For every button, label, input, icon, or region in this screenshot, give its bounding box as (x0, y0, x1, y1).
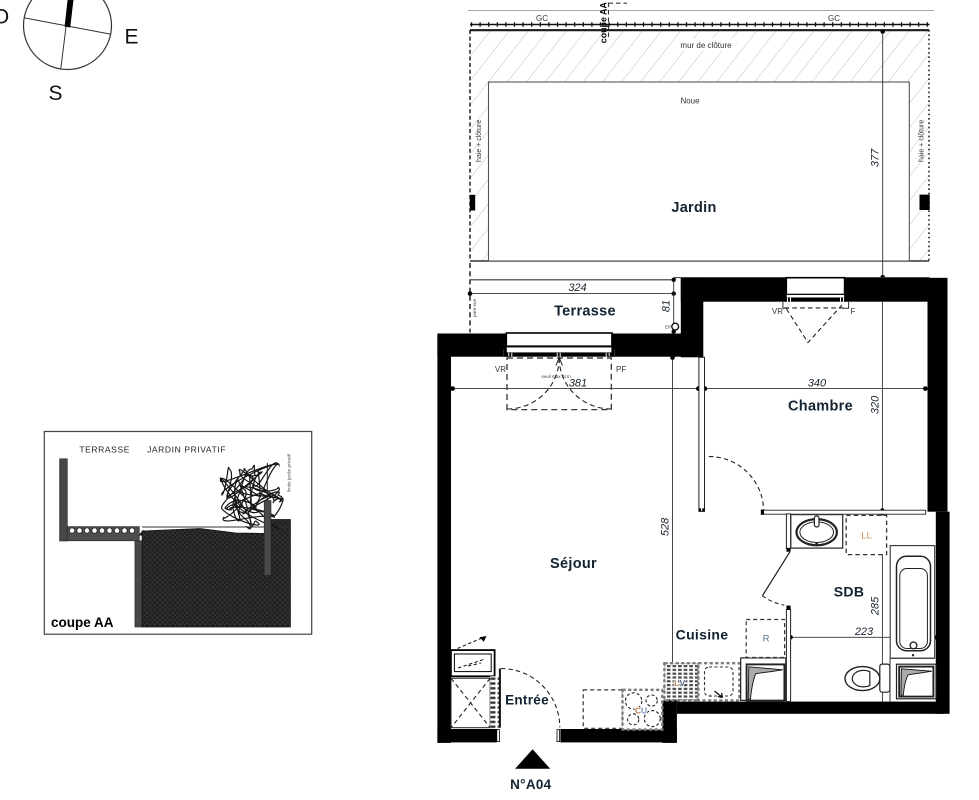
svg-text:VR: VR (495, 365, 506, 374)
svg-text:limite jardin privatif: limite jardin privatif (287, 453, 292, 492)
svg-text:L: L (674, 678, 679, 688)
svg-text:U: U (641, 706, 647, 716)
svg-text:Cuisine: Cuisine (676, 627, 729, 643)
svg-text:mur de clôture: mur de clôture (680, 41, 732, 50)
svg-text:Jardin: Jardin (671, 200, 716, 216)
svg-text:285: 285 (869, 596, 881, 616)
svg-text:GC: GC (828, 14, 840, 23)
svg-text:PF: PF (616, 365, 626, 374)
svg-text:pare-vue: pare-vue (472, 298, 477, 317)
svg-text:381: 381 (569, 377, 587, 389)
svg-text:haie + clôture: haie + clôture (476, 120, 483, 162)
svg-text:V: V (680, 678, 686, 688)
svg-text:JARDIN PRIVATIF: JARDIN PRIVATIF (147, 445, 226, 455)
svg-text:Séjour: Séjour (550, 556, 597, 572)
svg-text:N°A04: N°A04 (510, 777, 552, 792)
svg-text:528: 528 (660, 517, 672, 536)
svg-text:Entrée: Entrée (505, 693, 549, 708)
svg-text:SDB: SDB (834, 584, 864, 600)
svg-text:coupe AA: coupe AA (51, 615, 114, 630)
svg-text:320: 320 (869, 395, 881, 414)
svg-text:223: 223 (854, 626, 874, 638)
svg-text:81: 81 (661, 300, 673, 312)
svg-text:R: R (763, 634, 770, 645)
svg-text:S: S (48, 82, 62, 105)
svg-text:Chambre: Chambre (788, 399, 853, 415)
svg-text:EP: EP (665, 325, 671, 330)
svg-text:340: 340 (808, 377, 827, 389)
svg-text:F: F (851, 307, 856, 316)
svg-text:VR: VR (772, 307, 783, 316)
svg-text:seuil max 2cm: seuil max 2cm (541, 374, 571, 379)
svg-text:TERRASSE: TERRASSE (79, 445, 130, 455)
svg-text:324: 324 (568, 282, 586, 294)
svg-text:377: 377 (870, 148, 882, 167)
svg-text:Terrasse: Terrasse (554, 304, 616, 320)
svg-text:Noue: Noue (680, 97, 700, 106)
svg-text:haie + clôture: haie + clôture (919, 120, 926, 162)
svg-text:GC: GC (536, 14, 548, 23)
svg-text:LL: LL (861, 531, 872, 542)
svg-text:coupe AA: coupe AA (599, 2, 610, 43)
svg-text:E: E (124, 26, 138, 49)
svg-text:O: O (0, 6, 9, 29)
